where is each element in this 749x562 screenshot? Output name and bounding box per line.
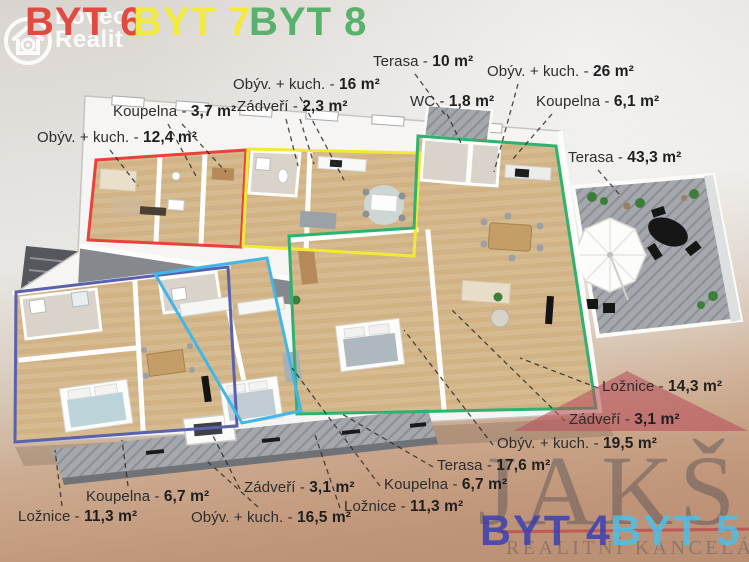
room-area-value: 6,1 m²	[614, 93, 659, 110]
room-area-label: Terasa - 10 m²	[373, 53, 473, 71]
room-area-value: 11,3 m²	[84, 508, 137, 525]
room-name: Zádveří -	[237, 98, 302, 115]
room-name: Koupelna -	[384, 476, 462, 493]
room-area-label: Koupelna - 6,7 m²	[86, 488, 209, 506]
room-area-value: 16 m²	[339, 76, 380, 93]
room-name: Ložnice -	[18, 508, 84, 525]
room-area-label: Obýv. + kuch. - 12,4 m²	[37, 129, 197, 147]
room-name: Terasa -	[568, 149, 627, 166]
room-area-label: Zádveří - 2,3 m²	[237, 98, 348, 116]
room-name: Koupelna -	[536, 93, 614, 110]
room-area-label: Terasa - 43,3 m²	[568, 149, 681, 167]
room-name: Obýv. + kuch. -	[497, 435, 603, 452]
room-area-value: 17,6 m²	[496, 457, 550, 474]
room-name: Koupelna -	[86, 488, 164, 505]
room-area-value: 3,7 m²	[191, 103, 236, 120]
terrace-large	[573, 175, 741, 336]
room-area-label: Obýv. + kuch. - 16 m²	[233, 76, 380, 94]
room-name: Ložnice -	[602, 378, 668, 395]
room-area-label: Obýv. + kuch. - 26 m²	[487, 63, 634, 81]
floorplan-image: Lovec Realit BYT 6 BYT 7 BYT 8 JAKŠ REAL…	[0, 0, 749, 562]
badge-byt-7: BYT 7	[133, 2, 251, 42]
room-area-label: Obýv. + kuch. - 16,5 m²	[191, 509, 351, 527]
room-area-label: Zádveří - 3,1 m²	[569, 411, 680, 429]
room-area-value: 43,3 m²	[627, 149, 681, 166]
room-area-value: 6,7 m²	[462, 476, 507, 493]
room-area-value: 14,3 m²	[668, 378, 722, 395]
room-name: Koupelna -	[113, 103, 191, 120]
room-area-label: Ložnice - 11,3 m²	[344, 498, 463, 516]
room-area-value: 3,1 m²	[634, 411, 679, 428]
badge-byt-4: BYT 4	[480, 510, 612, 553]
room-area-value: 6,7 m²	[164, 488, 209, 505]
room-area-value: 26 m²	[593, 63, 634, 80]
room-name: Ložnice -	[344, 498, 410, 515]
badge-byt-6: BYT 6	[25, 2, 143, 42]
room-area-label: Koupelna - 6,7 m²	[384, 476, 507, 494]
room-name: Terasa -	[437, 457, 496, 474]
room-name: Obýv. + kuch. -	[487, 63, 593, 80]
room-area-value: 12,4 m²	[143, 129, 197, 146]
badge-byt-5: BYT 5	[610, 510, 742, 553]
room-area-label: Ložnice - 14,3 m²	[602, 378, 722, 396]
room-name: Zádveří -	[244, 479, 309, 496]
room-area-label: Terasa - 17,6 m²	[437, 457, 550, 475]
room-name: Terasa -	[373, 53, 432, 70]
room-area-value: 3,1 m²	[309, 479, 354, 496]
room-area-value: 19,5 m²	[603, 435, 657, 452]
room-name: Obýv. + kuch. -	[233, 76, 339, 93]
room-area-value: 10 m²	[432, 53, 473, 70]
room-area-label: Koupelna - 3,7 m²	[113, 103, 236, 121]
room-area-label: Koupelna - 6,1 m²	[536, 93, 659, 111]
room-area-value: 16,5 m²	[297, 509, 351, 526]
room-name: WC -	[410, 93, 449, 110]
badge-byt-8: BYT 8	[249, 2, 367, 42]
room-area-label: WC - 1,8 m²	[410, 93, 494, 111]
room-area-value: 2,3 m²	[302, 98, 347, 115]
room-area-value: 1,8 m²	[449, 93, 494, 110]
room-area-label: Obýv. + kuch. - 19,5 m²	[497, 435, 657, 453]
room-area-label: Zádveří - 3,1 m²	[244, 479, 355, 497]
room-area-label: Ložnice - 11,3 m²	[18, 508, 137, 526]
room-name: Obýv. + kuch. -	[37, 129, 143, 146]
room-name: Zádveří -	[569, 411, 634, 428]
room-name: Obýv. + kuch. -	[191, 509, 297, 526]
room-area-value: 11,3 m²	[410, 498, 463, 515]
